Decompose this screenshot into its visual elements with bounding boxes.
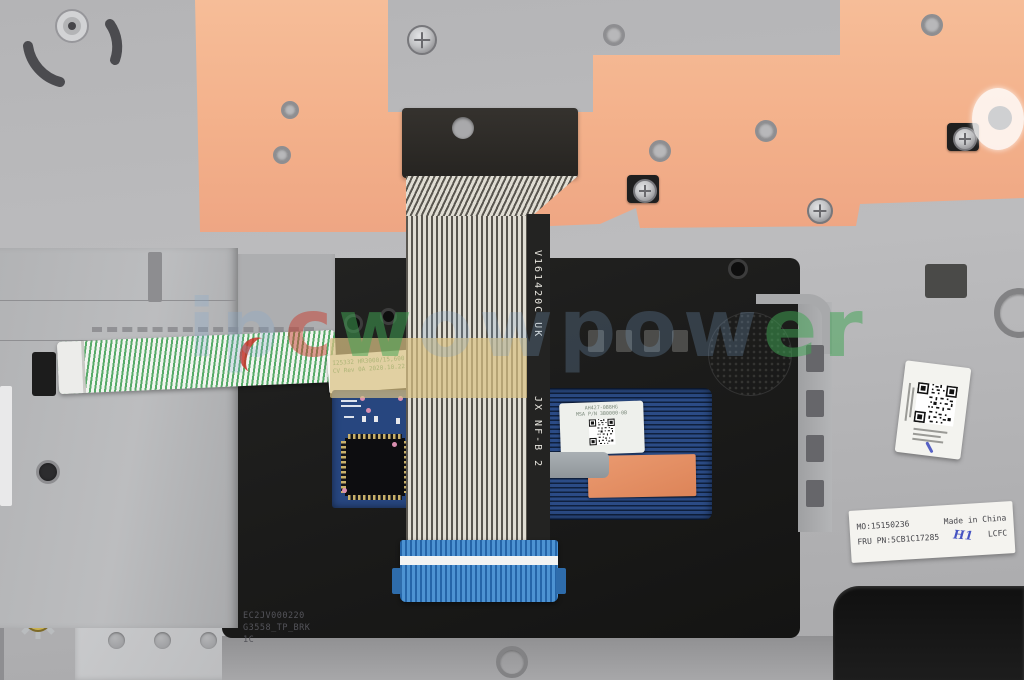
ffc-connector-end xyxy=(57,341,86,394)
rib-slot xyxy=(806,480,824,507)
dark-recess xyxy=(925,264,967,298)
ribbon-black-stripe: V161420C UK JX NF-B 2 xyxy=(527,214,550,546)
ribbon-stiffener-hole xyxy=(452,117,474,139)
screw-hole xyxy=(921,14,943,36)
touchpad-qr-label: AH427-0B8HG MSA P/N 3B0000-0B xyxy=(559,401,645,456)
screw-hole xyxy=(281,101,299,119)
test-point xyxy=(366,408,371,413)
chip-pins xyxy=(348,495,402,500)
test-point xyxy=(392,442,397,447)
rib-slot xyxy=(806,390,824,417)
stiffener-white-band xyxy=(400,556,558,565)
rib-slot xyxy=(806,345,824,372)
bracket-tooth xyxy=(616,330,632,352)
metal-seam xyxy=(0,300,236,301)
screw xyxy=(807,198,833,224)
ribbon-bottom-stiffener xyxy=(400,540,558,602)
dimple xyxy=(154,632,171,649)
rivet-row xyxy=(92,327,314,332)
molded-line1: EC2JV000220 xyxy=(243,610,310,622)
qr-code-icon xyxy=(913,382,958,427)
emboss-circle xyxy=(496,646,528,678)
component-pad xyxy=(362,416,366,422)
stiffener-tab xyxy=(392,568,402,594)
screw-hole xyxy=(273,146,291,164)
dimple xyxy=(200,632,217,649)
screw-boss-partial xyxy=(994,288,1024,338)
ribbon-marking-lower: JX NF-B 2 xyxy=(532,396,543,468)
metal-highlight-bar xyxy=(0,386,12,506)
test-point xyxy=(342,488,347,493)
molded-line3: 1C xyxy=(243,634,310,646)
palmrest-qr-label xyxy=(895,360,972,459)
red-pen-mark xyxy=(234,332,279,378)
screw-hole xyxy=(603,24,625,46)
touchpad-opening-panel xyxy=(833,586,1024,680)
qr-code-icon xyxy=(589,419,616,446)
round-sticker-center xyxy=(988,106,1012,130)
label-handwritten-mark: H1 xyxy=(953,527,974,543)
product-label: MO:15150236 Made in China FRU PN:5CB1C17… xyxy=(849,501,1016,563)
metal-grounding-tab xyxy=(545,452,609,478)
silkscreen-mark xyxy=(341,405,361,407)
screw-hole xyxy=(755,120,777,142)
silkscreen-mark xyxy=(341,400,357,402)
ribbon-marking-upper: V161420C UK xyxy=(532,250,543,338)
bracket-hole xyxy=(728,259,748,279)
molded-line2: G3558_TP_BRK xyxy=(243,622,310,634)
component-pad xyxy=(374,416,378,422)
controller-chip xyxy=(345,438,405,496)
silkscreen-mark xyxy=(344,416,354,418)
stiffener-tab xyxy=(556,568,566,594)
metal-hole xyxy=(36,460,60,484)
metal-plate-left xyxy=(0,248,238,628)
screw-boss-arcs-top-left xyxy=(14,0,144,104)
component-pad xyxy=(396,418,400,424)
rib-slot xyxy=(806,435,824,462)
bracket-tooth xyxy=(672,330,688,352)
label-vendor: LCFC xyxy=(988,525,1008,541)
bracket-tooth xyxy=(644,330,660,352)
screw xyxy=(633,179,657,203)
ribbon-top-stiffener xyxy=(402,108,578,178)
blue-pen-mark xyxy=(925,441,933,453)
screw-hole xyxy=(649,140,671,162)
bracket-hole xyxy=(380,308,397,325)
adhesive-tape xyxy=(330,338,528,398)
bracket-slot-hole xyxy=(32,352,56,396)
metal-notch xyxy=(148,252,162,302)
bracket-hole xyxy=(344,314,363,333)
chip-pins xyxy=(348,434,402,439)
photo-canvas: I25332 HR3000/15,600 CV Rev 0A 2020.10.2… xyxy=(0,0,1024,680)
molded-part-text: EC2JV000220 G3558_TP_BRK 1C xyxy=(243,610,310,646)
bracket-tooth xyxy=(588,330,604,352)
dimple xyxy=(108,632,125,649)
chip-pins xyxy=(341,441,346,493)
screw xyxy=(407,25,437,55)
